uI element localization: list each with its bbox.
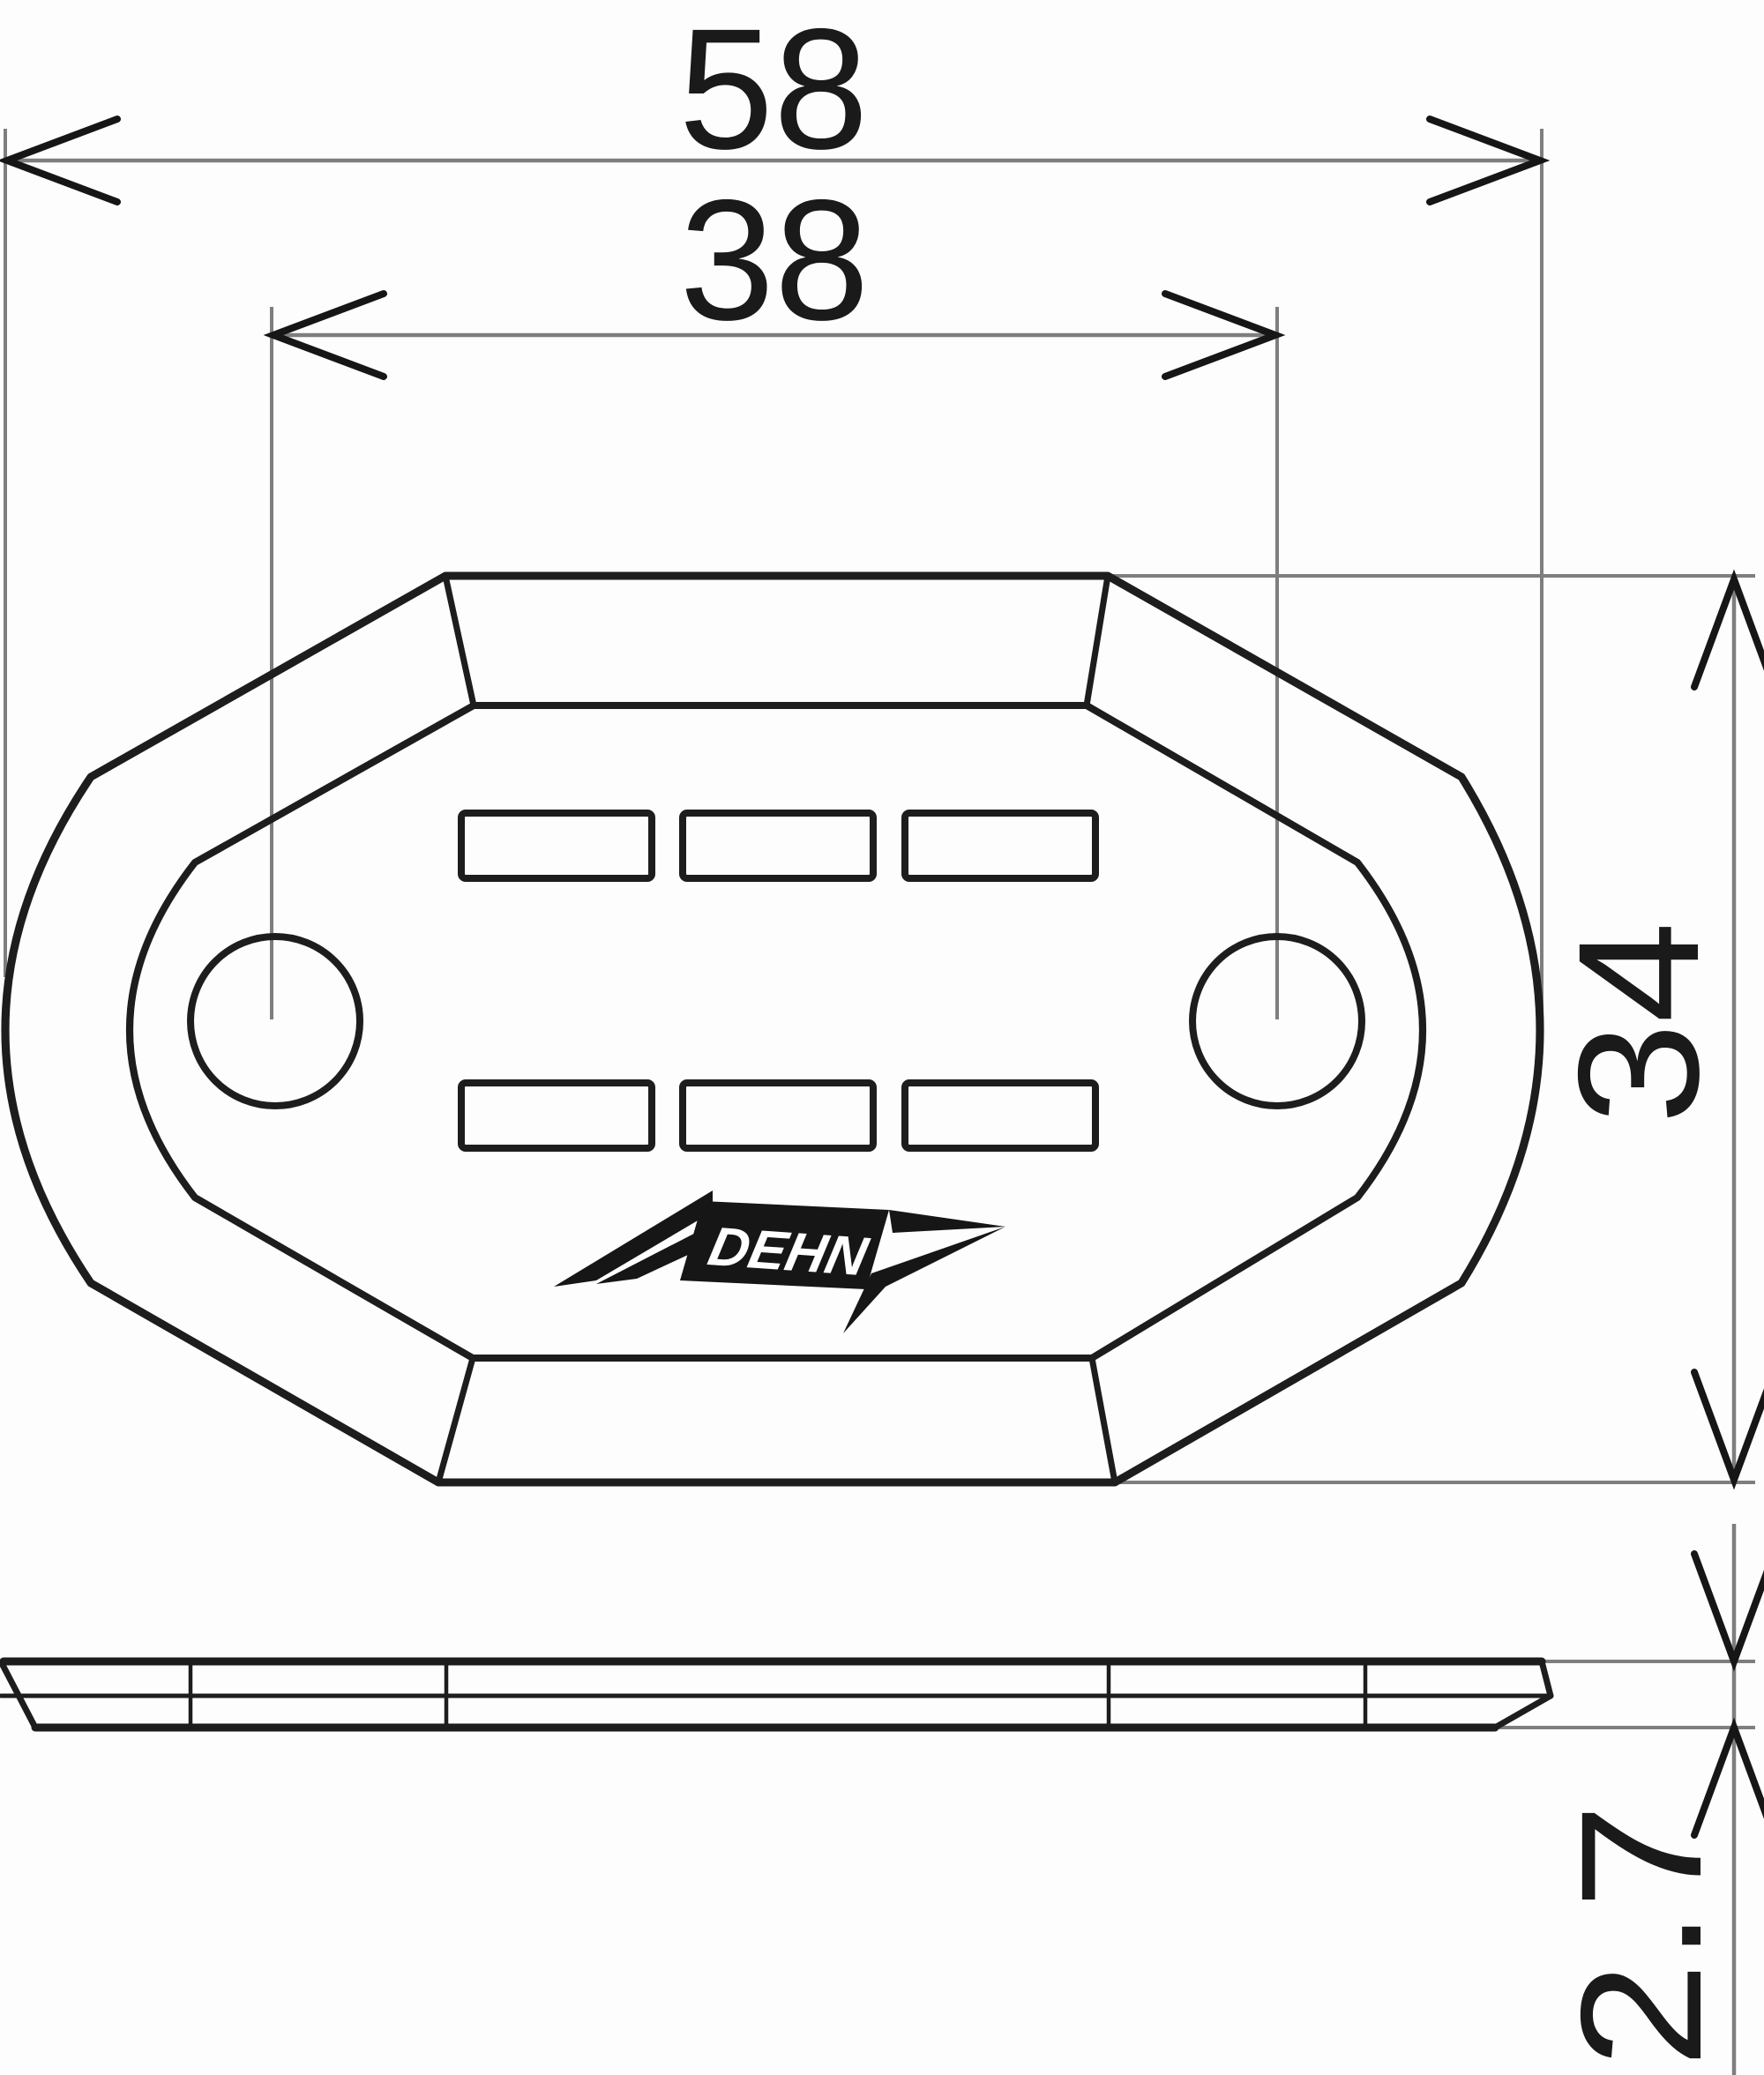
corner-edge-bottom-right bbox=[1092, 1358, 1115, 1482]
dimension-hole-spacing: 38 bbox=[273, 164, 1275, 377]
logo-flash-tip-right-upper bbox=[889, 1210, 1005, 1233]
slot bbox=[683, 813, 873, 878]
mounting-hole-left bbox=[191, 937, 360, 1106]
extension-lines bbox=[5, 129, 1755, 1728]
slot bbox=[461, 813, 652, 878]
corner-edge-top-left bbox=[445, 576, 474, 705]
slot bbox=[683, 1083, 873, 1148]
side-view-right-chamfer-lower bbox=[1495, 1696, 1551, 1728]
slot bbox=[461, 1083, 652, 1148]
top-view: DEHN bbox=[5, 576, 1540, 1482]
drawing-page: 58 38 34 2.7 bbox=[0, 0, 1764, 2075]
side-view-right-chamfer-upper bbox=[1542, 1661, 1551, 1696]
arrowhead-27-down bbox=[1694, 1554, 1764, 1661]
slot bbox=[905, 1083, 1095, 1148]
slot-row-top bbox=[461, 813, 1095, 878]
dimension-label-34: 34 bbox=[1543, 922, 1735, 1124]
dimension-overall-height: 34 bbox=[1543, 579, 1764, 1480]
corner-edge-top-right bbox=[1087, 576, 1108, 705]
plate-outer-contour bbox=[5, 576, 1540, 1482]
arrowhead-34-top bbox=[1694, 579, 1764, 687]
dehn-logo: DEHN bbox=[554, 1191, 1005, 1333]
corner-edge-bottom-left bbox=[438, 1358, 473, 1482]
technical-drawing: 58 38 34 2.7 bbox=[0, 0, 1764, 2075]
slot-row-bottom bbox=[461, 1083, 1095, 1148]
side-view bbox=[1, 1661, 1551, 1728]
arrowhead-34-bottom bbox=[1694, 1372, 1764, 1480]
dimension-label-58: 58 bbox=[679, 0, 869, 185]
dimension-thickness: 2.7 bbox=[1545, 1524, 1764, 2075]
slot bbox=[905, 813, 1095, 878]
dimension-label-27: 2.7 bbox=[1545, 1803, 1738, 2068]
dimension-label-38: 38 bbox=[680, 164, 870, 356]
logo-wordmark: DEHN bbox=[703, 1217, 874, 1288]
